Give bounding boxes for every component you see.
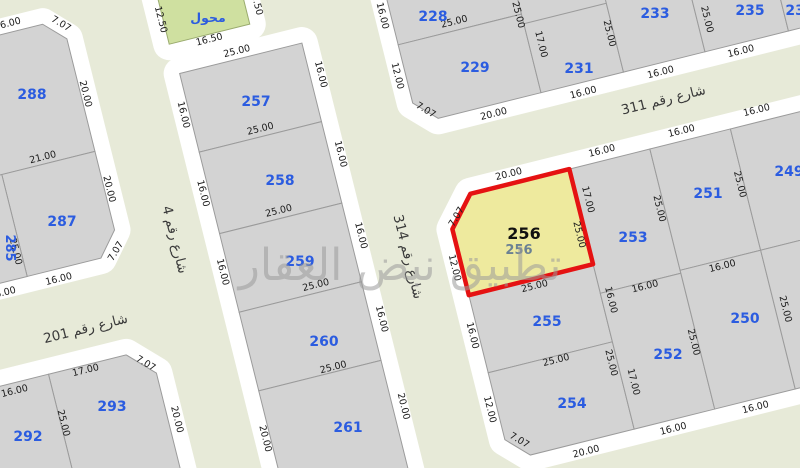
plot-number-233: 233 (640, 6, 669, 22)
plot-number-260: 260 (309, 334, 338, 350)
app-watermark: تطبيق نبض العقار (237, 240, 562, 291)
plot-number-250: 250 (730, 311, 759, 327)
plot-number-249: 249 (774, 164, 800, 180)
plot-number-285: 285 (2, 234, 17, 261)
plot-number-253: 253 (618, 230, 647, 246)
plot-number-258: 258 (265, 173, 294, 189)
parcel-map: 16.00 7.07 20.00 21.00 20.00 7.07 25.00 … (0, 0, 800, 468)
plot-number-292: 292 (13, 429, 42, 445)
plot-number-237: 237 (785, 3, 800, 19)
plot-number-255: 255 (532, 314, 561, 330)
plot-number-231: 231 (564, 61, 593, 77)
plot-number-293: 293 (97, 399, 126, 415)
plot-number-254: 254 (557, 396, 586, 412)
plot-number-228: 228 (418, 9, 447, 25)
plot-number-287: 287 (47, 214, 76, 230)
plot-number-288: 288 (17, 87, 46, 103)
map-canvas[interactable]: 16.00 7.07 20.00 21.00 20.00 7.07 25.00 … (0, 0, 800, 468)
plot-number-257: 257 (241, 94, 270, 110)
plot-number-261: 261 (333, 420, 362, 436)
plot-number-251: 251 (693, 186, 722, 202)
plot-number-235: 235 (735, 3, 764, 19)
plot-number-229: 229 (460, 60, 489, 76)
plot-number-252: 252 (653, 347, 682, 363)
transformer-plot-label: محول (190, 10, 225, 25)
